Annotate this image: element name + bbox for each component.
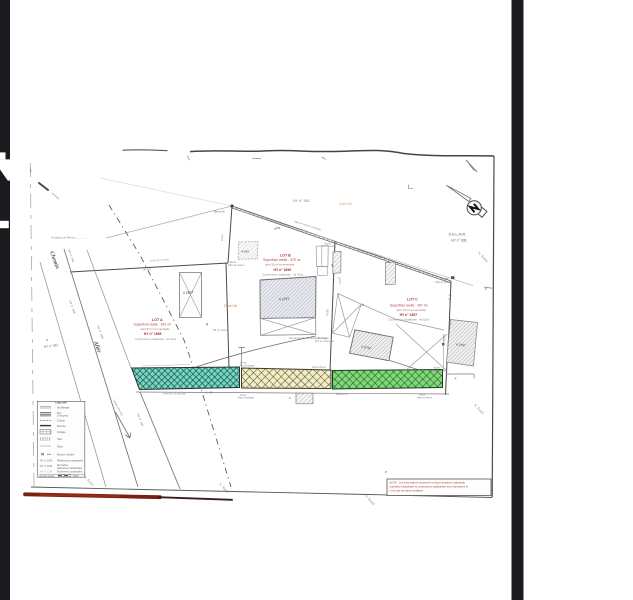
svg-text:Grillage: Grillage [57,431,66,434]
svg-text:Contenance cadastrale : 3a 75c: Contenance cadastrale : 3a 75ca [262,273,303,277]
svg-text:HY n° 1896: HY n° 1896 [274,268,292,272]
svg-text:n'ont pas de valeur juridique.: n'ont pas de valeur juridique. [390,489,425,493]
svg-text:Superficie réelle : 391 m²: Superficie réelle : 391 m² [134,323,173,327]
svg-text:Fondation de Meuron ..........: Fondation de Meuron .............. [51,236,87,240]
svg-text:x̄: x̄ [362,302,364,307]
svg-text:x: x [385,469,387,474]
svg-text:Mur de cloture de: Mur de cloture de [315,340,334,343]
svg-text:dont 75 m² en servitude: dont 75 m² en servitude [397,308,427,312]
svg-text:23.88: 23.88 [442,335,446,342]
svg-text:23.88: 23.88 [325,309,329,316]
svg-text:Talus: Talus [57,446,64,449]
svg-text:HY n° 1234: HY n° 1234 [40,459,53,462]
svg-text:Voi libérale: Voi libérale [57,406,70,409]
svg-text:Zone A2: Zone A2 [339,202,352,206]
svg-text:NOTA : Les informations issues: NOTA : Les informations issues de la doc… [390,481,466,485]
svg-text:1 : 88: 1 : 88 [206,391,213,395]
svg-text:LOT C: LOT C [407,297,418,301]
svg-text:références cadastrales: références cadastrales [57,467,83,470]
svg-text:( mitoyen): ( mitoyen) [57,415,68,418]
svg-text:LOT A: LOT A [152,318,163,322]
svg-text:85 pl. Avron: 85 pl. Avron [213,328,229,332]
svg-text:13.97: 13.97 [220,234,224,241]
svg-text:Haie: Haie [57,438,63,441]
svg-text:HY n° 1895: HY n° 1895 [144,332,162,336]
svg-text:Fin d'ouvrage: Fin d'ouvrage [240,364,255,367]
svg-text:LOT B: LOT B [280,253,291,257]
svg-text:HY n° 1234: HY n° 1234 [40,465,53,468]
svg-text:1/500: 1/500 [73,475,80,478]
svg-text:Haie de cloture: Haie de cloture [435,281,452,284]
svg-text:Cloture: Cloture [57,420,66,423]
svg-text:Haie de Pierre: Haie de Pierre [417,396,433,399]
svg-text:Superficie réelle : 457 m²: Superficie réelle : 457 m² [390,303,429,307]
svg-text:x756: x756 [274,226,281,231]
svg-text:dont 97 m² en servitude: dont 97 m² en servitude [140,327,170,331]
svg-text:Murette: Murette [57,425,66,428]
svg-text:Zone U6: Zone U6 [224,304,237,308]
svg-text:x: x [455,376,457,381]
svg-text:HY n° 345: HY n° 345 [293,199,309,203]
svg-text:S.H.L.M.R.: S.H.L.M.R. [449,233,467,237]
svg-text:Contenance cadastrale : 3a 91c: Contenance cadastrale : 3a 91ca [135,337,176,341]
svg-text:Anciennes cadastrales: Anciennes cadastrales [57,471,83,474]
svg-text:# 505: # 505 [242,250,250,254]
svg-text:servitude de passage: servitude de passage [163,393,186,396]
svg-text:Borne 56: Borne 56 [214,210,225,214]
svg-text:HY n° 338: HY n° 338 [451,239,467,243]
svg-text:# 2857: # 2857 [183,290,194,295]
svg-text:Servit. Borne: Servit. Borne [312,366,326,369]
svg-text:x: x [46,337,48,342]
svg-text:Références cadastrales: Références cadastrales [57,459,84,462]
svg-text:HY n° 1234: HY n° 1234 [40,471,53,474]
svg-text:Haie de cloture: Haie de cloture [228,264,245,267]
svg-text:Échelle graph.: Échelle graph. [40,475,56,478]
svg-text:# 2757: # 2757 [279,297,290,302]
svg-text:Bornes / limites: Bornes / limites [57,454,75,457]
svg-text:Pas d'espalage: Pas d'espalage [238,397,255,400]
svg-text:l.: l. [30,168,32,173]
svg-text:Muret 2.05: Muret 2.05 [336,393,348,396]
svg-text:(40.97): (40.97) [143,267,152,272]
svg-text:(opération graphique et conten: (opération graphique et contenance cadas… [390,485,469,489]
svg-text:HY n° 1897: HY n° 1897 [400,313,418,317]
svg-text:Fin d'ouvrage: Fin d'ouvrage [322,245,337,248]
svg-text:x: x [289,396,291,400]
svg-text:Haie de Cloture: Haie de Cloture [432,369,449,372]
svg-text:Contenance cadastrale : 4a 52c: Contenance cadastrale : 4a 52ca [388,318,429,322]
svg-text:dont 30 m² en servitude: dont 30 m² en servitude [265,262,295,266]
svg-text:Légende: Légende [55,401,67,405]
